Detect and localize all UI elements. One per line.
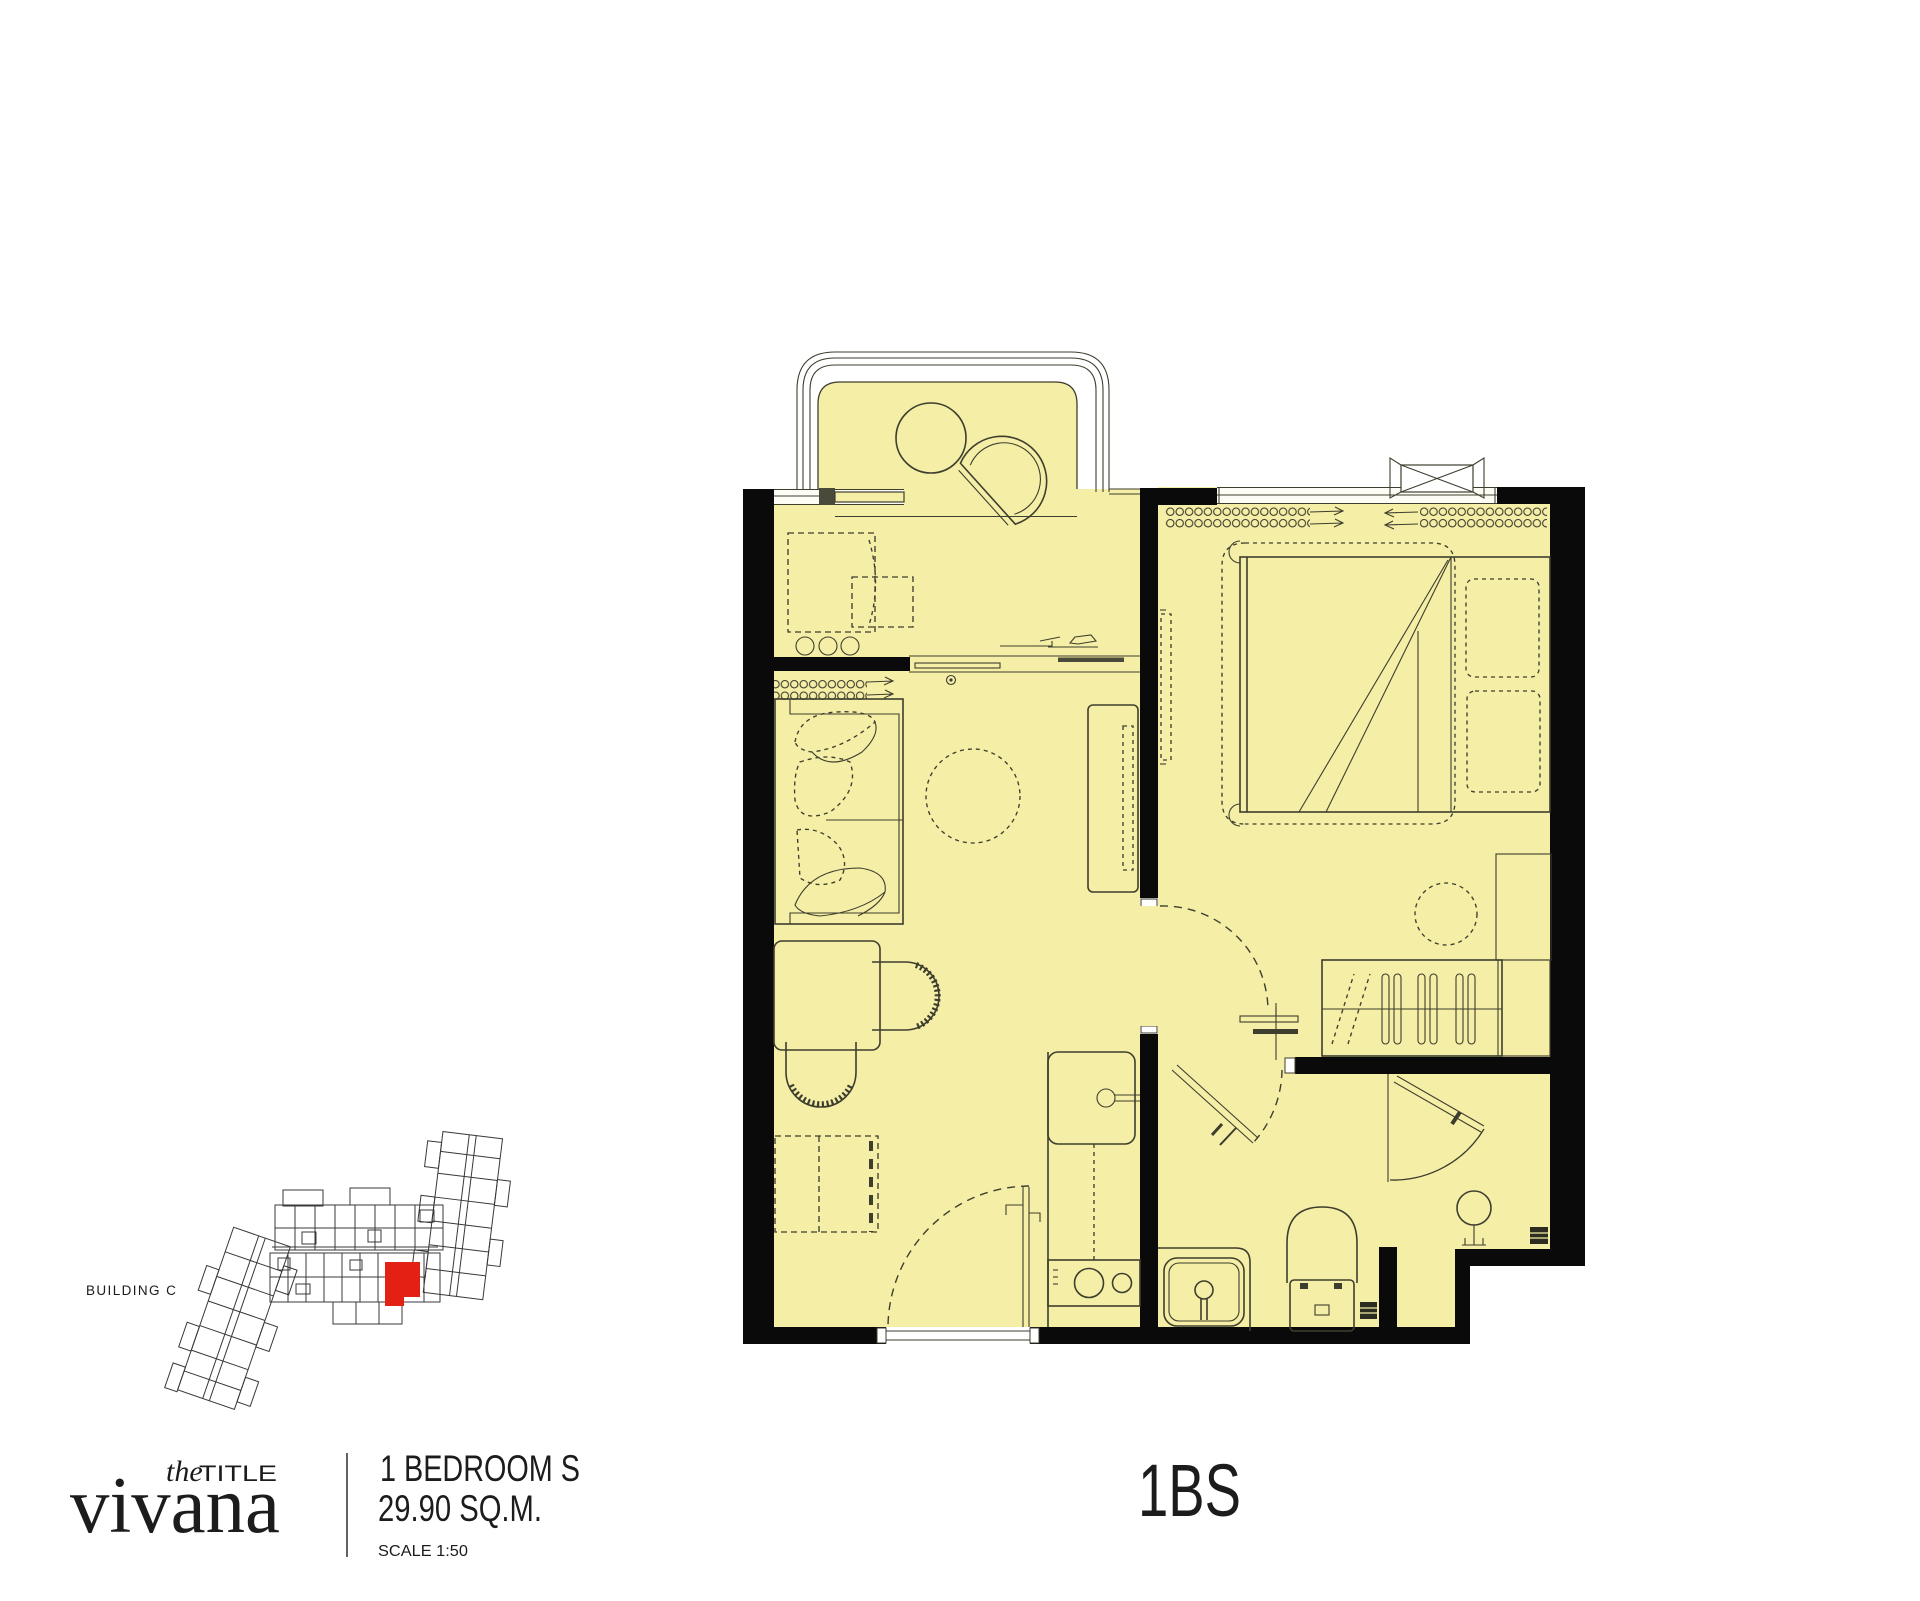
svg-text:1BS: 1BS: [1138, 1449, 1241, 1532]
svg-text:BUILDING C: BUILDING C: [86, 1283, 177, 1298]
svg-text:vivana: vivana: [70, 1462, 280, 1550]
svg-text:29.90 SQ.M.: 29.90 SQ.M.: [378, 1488, 542, 1529]
svg-text:SCALE 1:50: SCALE 1:50: [378, 1543, 468, 1560]
svg-text:1 BEDROOM S: 1 BEDROOM S: [380, 1448, 580, 1489]
